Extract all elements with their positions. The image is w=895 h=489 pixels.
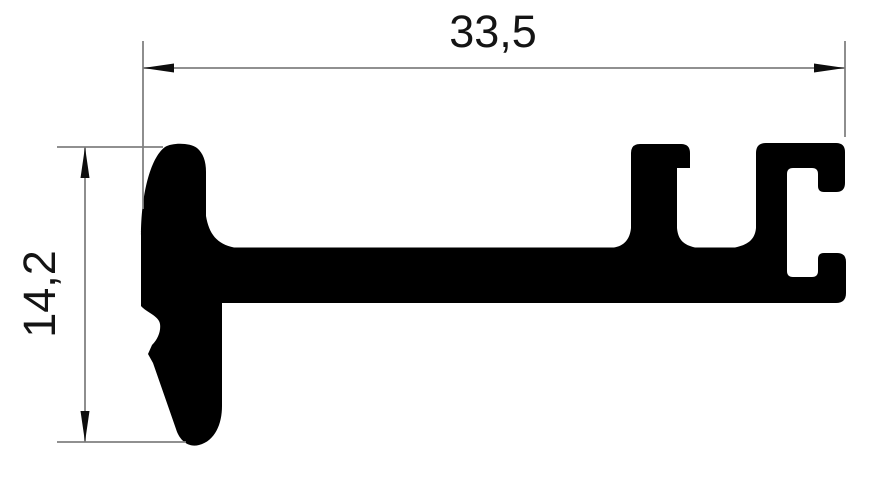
arrowhead-top-icon [81,147,90,178]
arrowhead-left-icon [143,64,174,73]
width-dimension-label: 33,5 [449,6,537,57]
profile-cross-section [141,143,846,446]
height-dimension-label: 14,2 [14,250,65,338]
technical-drawing-svg: 33,5 14,2 [0,0,895,489]
arrowhead-bottom-icon [81,411,90,442]
arrowhead-right-icon [814,64,845,73]
width-dimension: 33,5 [143,6,845,209]
profile-outline-shape [141,143,846,446]
drawing-canvas: 33,5 14,2 [0,0,895,489]
